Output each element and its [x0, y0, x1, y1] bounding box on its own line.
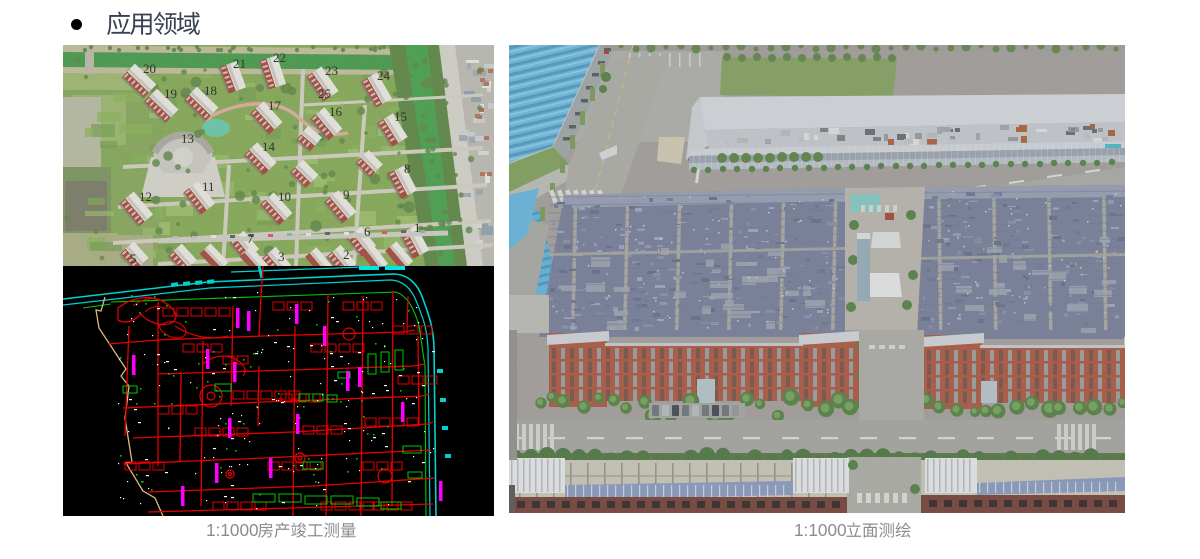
svg-text:1:1000: 1:1000: [206, 520, 259, 540]
svg-text:1:1000: 1:1000: [794, 520, 847, 540]
